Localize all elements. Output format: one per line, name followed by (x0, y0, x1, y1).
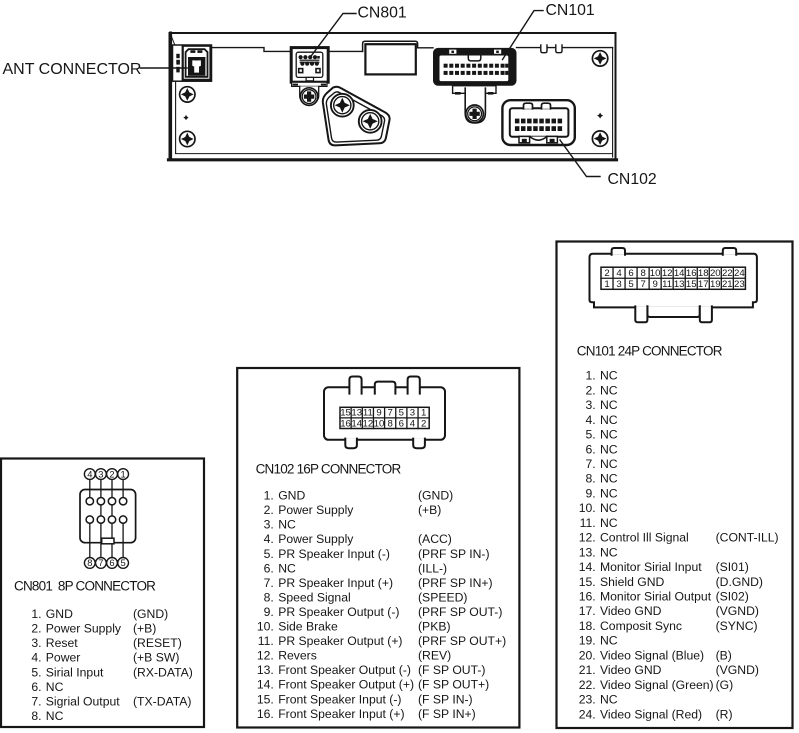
svg-text:GND: GND (46, 607, 73, 621)
svg-text:NC: NC (600, 442, 618, 456)
svg-text:8: 8 (640, 268, 645, 279)
svg-text:(F SP IN-): (F SP IN-) (418, 692, 473, 706)
svg-text:12: 12 (662, 268, 673, 279)
svg-text:(SYNC): (SYNC) (716, 619, 758, 633)
svg-text:Revers: Revers (278, 649, 317, 663)
svg-text:6: 6 (628, 268, 633, 279)
svg-text:CN101: CN101 (546, 2, 595, 19)
svg-text:10: 10 (650, 268, 661, 279)
svg-text:19.: 19. (579, 634, 596, 648)
svg-text:2.: 2. (264, 503, 274, 517)
svg-text:PR Speaker Output (-): PR Speaker Output (-) (278, 605, 399, 619)
svg-text:(CONT-ILL): (CONT-ILL) (716, 531, 779, 545)
svg-text:18: 18 (698, 268, 709, 279)
svg-text:CN801 8P CONNECTOR: CN801 8P CONNECTOR (14, 579, 156, 594)
svg-text:20: 20 (710, 268, 721, 279)
svg-text:NC: NC (600, 428, 618, 442)
svg-text:CN101 24P CONNECTOR: CN101 24P CONNECTOR (577, 344, 723, 359)
svg-text:Video Signal (Blue): Video Signal (Blue) (600, 648, 704, 662)
svg-text:1.: 1. (31, 607, 41, 621)
svg-text:5: 5 (399, 408, 404, 419)
svg-text:1: 1 (604, 279, 609, 290)
svg-text:Power: Power (46, 651, 81, 665)
svg-text:5: 5 (628, 279, 633, 290)
svg-text:NC: NC (600, 398, 618, 412)
svg-text:CN801: CN801 (358, 5, 407, 22)
svg-text:18.: 18. (579, 619, 596, 633)
svg-text:20.: 20. (579, 648, 596, 662)
svg-text:PR Speaker Output (+): PR Speaker Output (+) (278, 634, 402, 648)
svg-text:(F SP OUT-): (F SP OUT-) (418, 663, 485, 677)
svg-text:NC: NC (600, 693, 618, 707)
svg-text:(R): (R) (716, 707, 733, 721)
svg-text:15.: 15. (257, 692, 274, 706)
svg-text:15: 15 (340, 408, 351, 419)
svg-text:12: 12 (363, 418, 374, 429)
svg-text:NC: NC (600, 383, 618, 397)
svg-text:4: 4 (87, 468, 92, 479)
svg-text:12.: 12. (257, 649, 274, 663)
svg-text:(RX-DATA): (RX-DATA) (133, 665, 193, 679)
svg-text:19: 19 (710, 279, 721, 290)
svg-text:23: 23 (734, 279, 745, 290)
svg-text:4: 4 (410, 418, 416, 429)
svg-text:7.: 7. (31, 695, 41, 709)
svg-text:(SI01): (SI01) (716, 560, 749, 574)
svg-text:(PRF SP IN+): (PRF SP IN+) (418, 576, 493, 590)
svg-text:8.: 8. (264, 590, 274, 604)
svg-text:8: 8 (87, 557, 92, 568)
svg-text:Front Speaker Input (-): Front Speaker Input (-) (278, 692, 401, 706)
svg-text:(RESET): (RESET) (133, 636, 182, 650)
svg-text:3: 3 (98, 468, 103, 479)
svg-text:3: 3 (616, 279, 621, 290)
svg-text:15: 15 (686, 279, 697, 290)
svg-text:(B): (B) (716, 648, 732, 662)
svg-text:(F SP IN+): (F SP IN+) (418, 707, 476, 721)
svg-text:22.: 22. (579, 678, 596, 692)
svg-text:5.: 5. (264, 547, 274, 561)
svg-text:4.: 4. (264, 532, 274, 546)
svg-text:10: 10 (374, 418, 385, 429)
svg-text:Side Brake: Side Brake (278, 620, 338, 634)
svg-text:NC: NC (278, 518, 296, 532)
svg-text:2.: 2. (586, 383, 596, 397)
svg-text:(SPEED): (SPEED) (418, 590, 467, 604)
svg-text:22: 22 (722, 268, 733, 279)
svg-text:NC: NC (600, 487, 618, 501)
svg-text:CN102: CN102 (608, 171, 657, 188)
svg-text:(VGND): (VGND) (716, 604, 759, 618)
svg-text:7.: 7. (264, 576, 274, 590)
svg-text:(PRF SP IN-): (PRF SP IN-) (418, 547, 490, 561)
svg-text:Monitor Sirial Output: Monitor Sirial Output (600, 590, 712, 604)
svg-text:9: 9 (652, 279, 657, 290)
svg-text:15.: 15. (579, 575, 596, 589)
svg-text:NC: NC (600, 545, 618, 559)
svg-text:7: 7 (98, 557, 103, 568)
svg-text:Speed Signal: Speed Signal (278, 590, 351, 604)
svg-text:Power Supply: Power Supply (278, 503, 354, 517)
svg-text:NC: NC (278, 561, 296, 575)
svg-text:(ACC): (ACC) (418, 532, 452, 546)
svg-text:17: 17 (698, 279, 709, 290)
svg-text:3: 3 (410, 408, 415, 419)
svg-text:2: 2 (109, 468, 114, 479)
svg-text:14.: 14. (579, 560, 596, 574)
svg-text:CN102 16P CONNECTOR: CN102 16P CONNECTOR (256, 462, 402, 477)
svg-text:1.: 1. (586, 369, 596, 383)
svg-text:Power Supply: Power Supply (278, 532, 354, 546)
svg-text:21.: 21. (579, 663, 596, 677)
svg-text:16.: 16. (257, 707, 274, 721)
svg-text:13: 13 (351, 408, 362, 419)
svg-text:2: 2 (604, 268, 609, 279)
svg-text:6.: 6. (586, 442, 596, 456)
svg-text:Power Supply: Power Supply (46, 622, 122, 636)
svg-text:NC: NC (600, 501, 618, 515)
svg-text:6: 6 (109, 557, 114, 568)
svg-text:(VGND): (VGND) (716, 663, 759, 677)
svg-text:8: 8 (388, 418, 393, 429)
svg-text:10.: 10. (257, 620, 274, 634)
svg-text:16: 16 (340, 418, 351, 429)
svg-text:(F SP OUT+): (F SP OUT+) (418, 678, 489, 692)
svg-text:Shield GND: Shield GND (600, 575, 665, 589)
svg-text:(PRF SP OUT-): (PRF SP OUT-) (418, 605, 502, 619)
svg-text:Front Speaker Input (+): Front Speaker Input (+) (278, 707, 404, 721)
svg-text:Video Signal (Red): Video Signal (Red) (600, 707, 702, 721)
svg-text:3.: 3. (264, 518, 274, 532)
svg-text:7.: 7. (586, 457, 596, 471)
svg-text:16.: 16. (579, 590, 596, 604)
svg-text:NC: NC (600, 457, 618, 471)
svg-text:5.: 5. (586, 428, 596, 442)
svg-text:13.: 13. (579, 545, 596, 559)
svg-text:PR Speaker Input (-): PR Speaker Input (-) (278, 547, 390, 561)
svg-text:NC: NC (600, 413, 618, 427)
svg-text:(+B): (+B) (418, 503, 441, 517)
svg-text:23.: 23. (579, 693, 596, 707)
svg-text:8.: 8. (31, 709, 41, 723)
svg-text:21: 21 (722, 279, 733, 290)
svg-text:NC: NC (600, 516, 618, 530)
svg-text:11.: 11. (580, 516, 596, 530)
svg-text:13.: 13. (257, 663, 274, 677)
svg-text:ANT CONNECTOR: ANT CONNECTOR (3, 61, 142, 78)
svg-text:11: 11 (662, 279, 672, 290)
svg-text:5: 5 (120, 557, 125, 568)
svg-text:2: 2 (421, 418, 426, 429)
svg-text:11.: 11. (258, 634, 274, 648)
svg-text:GND: GND (278, 489, 305, 503)
svg-text:7: 7 (640, 279, 645, 290)
svg-text:11: 11 (363, 408, 373, 419)
svg-text:9: 9 (376, 408, 381, 419)
svg-text:1: 1 (421, 408, 426, 419)
svg-text:Video Signal (Green): Video Signal (Green) (600, 678, 714, 692)
svg-text:1.: 1. (264, 489, 274, 503)
svg-text:Sigrial Output: Sigrial Output (46, 695, 120, 709)
svg-text:(ILL-): (ILL-) (418, 561, 447, 575)
svg-text:(PRF SP OUT+): (PRF SP OUT+) (418, 634, 506, 648)
svg-text:Control Ill Signal: Control Ill Signal (600, 531, 689, 545)
svg-text:PR Speaker Input (+): PR Speaker Input (+) (278, 576, 393, 590)
svg-text:4.: 4. (31, 651, 41, 665)
svg-text:Composit Sync: Composit Sync (600, 619, 682, 633)
svg-text:5.: 5. (31, 665, 41, 679)
svg-text:9.: 9. (586, 487, 596, 501)
svg-text:(D.GND): (D.GND) (716, 575, 763, 589)
svg-text:2.: 2. (31, 622, 41, 636)
svg-text:NC: NC (600, 472, 618, 486)
svg-text:14: 14 (351, 418, 362, 429)
svg-text:Video GND: Video GND (600, 604, 662, 618)
svg-text:7: 7 (388, 408, 393, 419)
svg-text:Sirial Input: Sirial Input (46, 665, 104, 679)
svg-text:(TX-DATA): (TX-DATA) (133, 695, 191, 709)
svg-text:12.: 12. (579, 531, 596, 545)
svg-text:(+B): (+B) (133, 622, 156, 636)
svg-text:3.: 3. (31, 636, 41, 650)
svg-text:(GND): (GND) (133, 607, 168, 621)
svg-text:(REV): (REV) (418, 649, 451, 663)
svg-text:3.: 3. (586, 398, 596, 412)
svg-text:NC: NC (46, 680, 64, 694)
svg-text:8.: 8. (586, 472, 596, 486)
svg-text:6.: 6. (264, 561, 274, 575)
svg-text:NC: NC (600, 634, 618, 648)
svg-text:Front Speaker Output (-): Front Speaker Output (-) (278, 663, 411, 677)
svg-text:Monitor Sirial Input: Monitor Sirial Input (600, 560, 702, 574)
svg-text:17.: 17. (579, 604, 596, 618)
svg-text:(SI02): (SI02) (716, 590, 749, 604)
svg-text:13: 13 (674, 279, 685, 290)
svg-text:(GND): (GND) (418, 489, 453, 503)
svg-text:4.: 4. (586, 413, 596, 427)
svg-text:14: 14 (674, 268, 685, 279)
svg-text:(G): (G) (716, 678, 734, 692)
svg-text:(+B SW): (+B SW) (133, 651, 179, 665)
svg-text:1: 1 (120, 468, 125, 479)
svg-text:Video GND: Video GND (600, 663, 662, 677)
svg-text:24: 24 (734, 268, 745, 279)
svg-text:24.: 24. (579, 707, 596, 721)
svg-text:(PKB): (PKB) (418, 620, 451, 634)
svg-text:NC: NC (46, 709, 64, 723)
svg-text:Front Speaker Output (+): Front Speaker Output (+) (278, 678, 414, 692)
svg-text:10.: 10. (579, 501, 596, 515)
svg-text:14.: 14. (257, 678, 274, 692)
svg-text:Reset: Reset (46, 636, 78, 650)
svg-text:NC: NC (600, 369, 618, 383)
svg-text:6: 6 (399, 418, 404, 429)
svg-text:16: 16 (686, 268, 697, 279)
svg-text:6.: 6. (31, 680, 41, 694)
svg-text:9.: 9. (264, 605, 274, 619)
svg-text:4: 4 (616, 268, 622, 279)
